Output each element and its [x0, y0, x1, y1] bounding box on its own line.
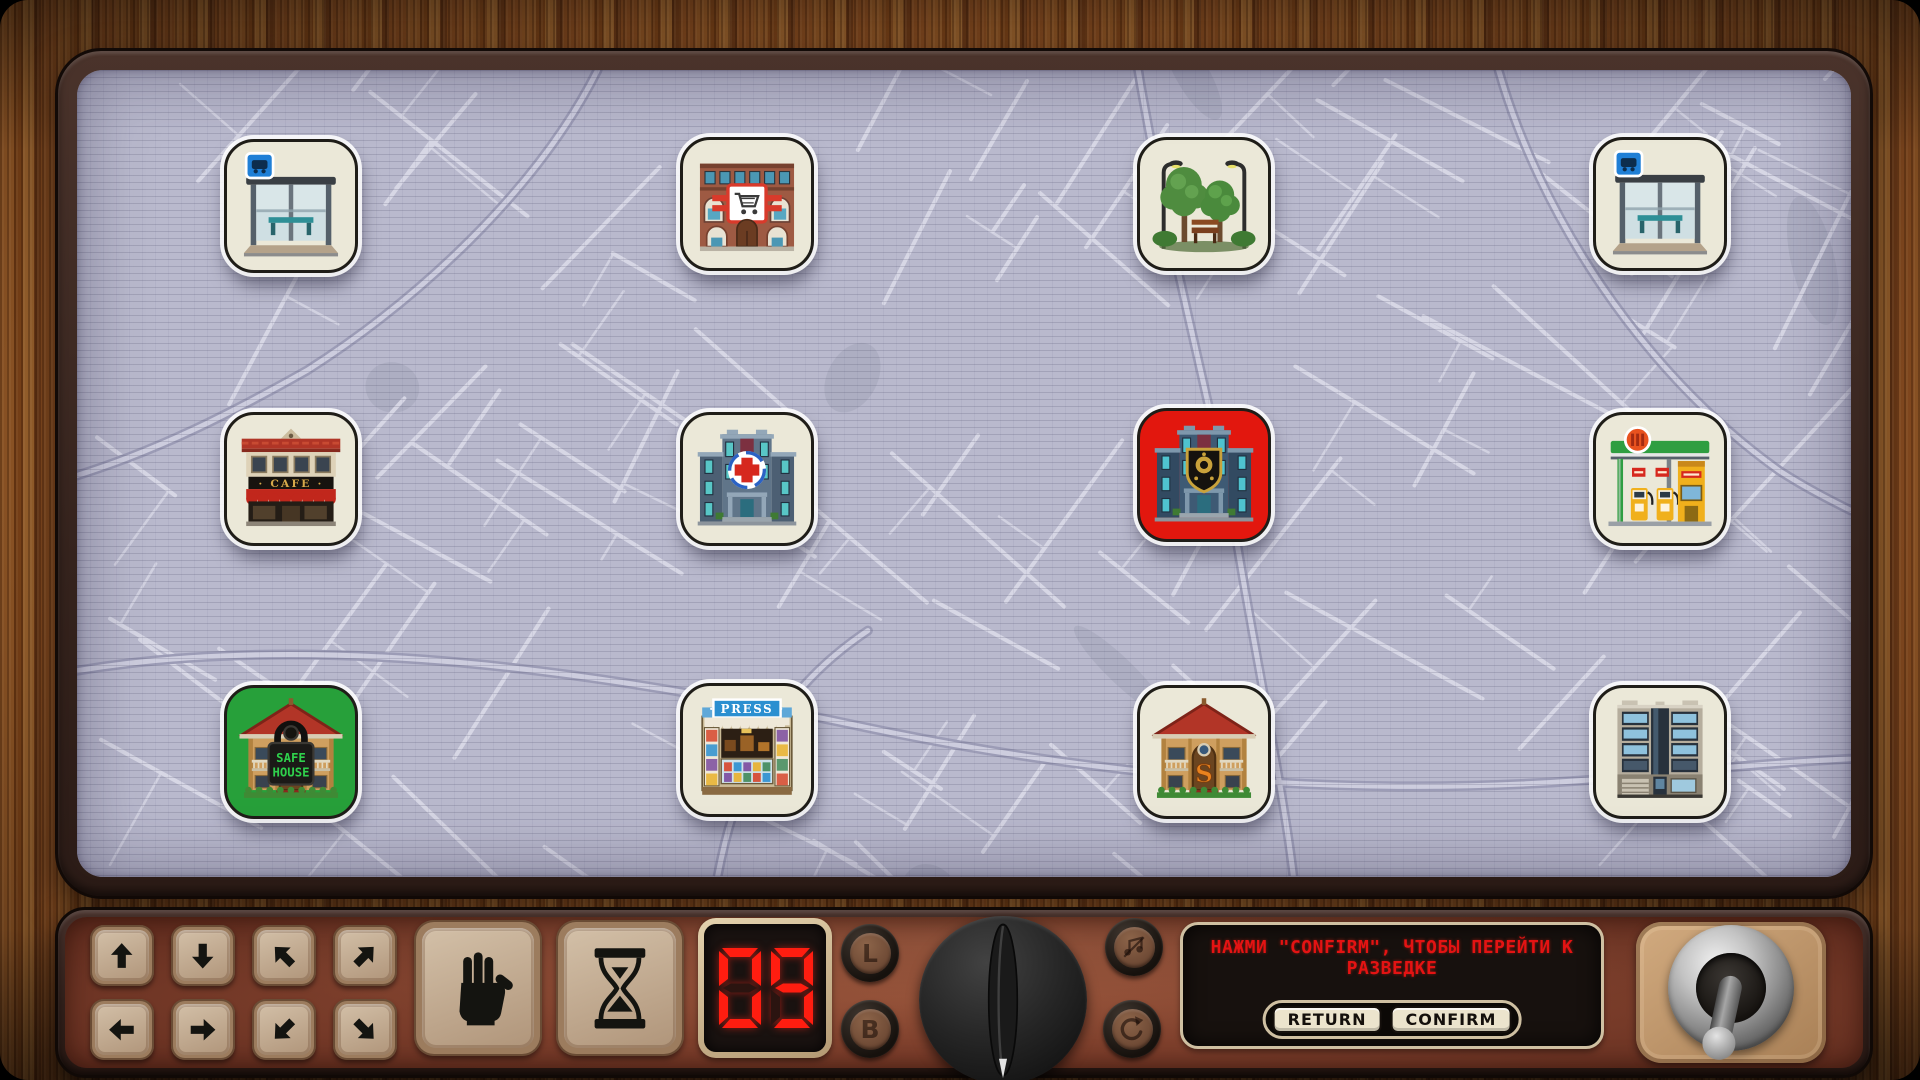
music-off-button[interactable]	[1105, 918, 1163, 976]
svg-text:HOUSE: HOUSE	[272, 766, 309, 780]
map-location-bus-stop-north-east[interactable]	[1593, 137, 1727, 271]
map-location-hospital[interactable]	[680, 412, 814, 546]
message-display: НАЖМИ "CONFIRM", ЧТОБЫ ПЕРЕЙТИ К РАЗВЕДК…	[1180, 922, 1604, 1049]
b-button[interactable]: B	[841, 1000, 899, 1058]
hourglass-icon	[583, 944, 657, 1033]
hourglass-button[interactable]	[556, 920, 684, 1056]
svg-text:S: S	[1195, 759, 1213, 788]
map-location-shopping-mall[interactable]	[680, 137, 814, 271]
control-panel: L B	[55, 907, 1873, 1078]
headquarters-icon	[1148, 419, 1260, 531]
dpad-up-left-button[interactable]	[252, 925, 316, 986]
display-button-group: RETURN CONFIRM	[1263, 1000, 1522, 1039]
apartment-icon	[1604, 696, 1716, 808]
cafe-icon: · CAFE ·	[235, 423, 347, 535]
dpad-right-button[interactable]	[171, 999, 235, 1060]
arrow-down-right-icon	[348, 1014, 381, 1046]
safe-house-icon: SAFE HOUSE	[235, 696, 347, 808]
svg-text:· CAFE ·: · CAFE ·	[258, 477, 323, 490]
arrow-up-right-icon	[348, 940, 381, 972]
arrow-left-icon	[105, 1014, 138, 1046]
map-location-safe-house[interactable]: SAFE HOUSE	[224, 685, 358, 819]
music-off-icon	[1119, 932, 1149, 962]
message-line-1: НАЖМИ "CONFIRM", ЧТОБЫ ПЕРЕЙТИ К	[1183, 937, 1601, 958]
villa-icon: S	[1148, 696, 1260, 808]
arrow-right-icon	[186, 1014, 219, 1046]
return-button[interactable]: RETURN	[1273, 1006, 1382, 1033]
park-icon	[1148, 148, 1260, 260]
arrow-up-left-icon	[267, 940, 300, 972]
message-line-2: РАЗВЕДКЕ	[1183, 958, 1601, 979]
city-map: · CAFE ·	[77, 70, 1851, 877]
console: · CAFE ·	[0, 0, 1920, 1080]
press-kiosk-icon: · PRESS ·	[691, 694, 803, 806]
map-location-cafe[interactable]: · CAFE ·	[224, 412, 358, 546]
b-button-label: B	[860, 1015, 879, 1044]
dpad-down-left-button[interactable]	[252, 999, 316, 1060]
mall-icon	[691, 148, 803, 260]
dpad-left-button[interactable]	[90, 999, 154, 1060]
hospital-icon	[691, 423, 803, 535]
rotary-dial[interactable]	[919, 916, 1087, 1080]
dpad-down-right-button[interactable]	[333, 999, 397, 1060]
map-location-park[interactable]	[1137, 137, 1271, 271]
joystick[interactable]	[1636, 922, 1826, 1063]
arrow-down-left-icon	[267, 1014, 300, 1046]
l-button[interactable]: L	[841, 924, 899, 982]
dial-blade	[919, 916, 1087, 1080]
map-screen-bezel: · CAFE ·	[55, 48, 1873, 899]
dpad-up-right-button[interactable]	[333, 925, 397, 986]
map-location-gas-station[interactable]	[1593, 412, 1727, 546]
confirm-button[interactable]: CONFIRM	[1391, 1006, 1512, 1033]
timer-display	[698, 918, 832, 1058]
map-location-villa-s[interactable]: S	[1137, 685, 1271, 819]
dpad	[90, 925, 397, 1060]
svg-text:· PRESS ·: · PRESS ·	[709, 702, 785, 716]
restart-button[interactable]	[1103, 1000, 1161, 1058]
arrow-down-icon	[186, 940, 219, 972]
svg-text:SAFE: SAFE	[276, 751, 306, 765]
l-button-label: L	[862, 939, 878, 968]
bus-stop-icon	[235, 150, 347, 262]
bus-stop-icon	[1604, 148, 1716, 260]
map-location-bus-stop-north-west[interactable]	[224, 139, 358, 273]
message-text: НАЖМИ "CONFIRM", ЧТОБЫ ПЕРЕЙТИ К РАЗВЕДК…	[1183, 937, 1601, 979]
map-location-apartment-building[interactable]	[1593, 685, 1727, 819]
gas-station-icon	[1604, 423, 1716, 535]
hand-icon	[441, 944, 515, 1033]
hand-button[interactable]	[414, 920, 542, 1056]
map-location-headquarters[interactable]	[1137, 408, 1271, 542]
restart-icon	[1117, 1014, 1147, 1044]
map-location-press-kiosk[interactable]: · PRESS ·	[680, 683, 814, 817]
arrow-up-icon	[105, 940, 138, 972]
dpad-down-button[interactable]	[171, 925, 235, 986]
dpad-up-button[interactable]	[90, 925, 154, 986]
